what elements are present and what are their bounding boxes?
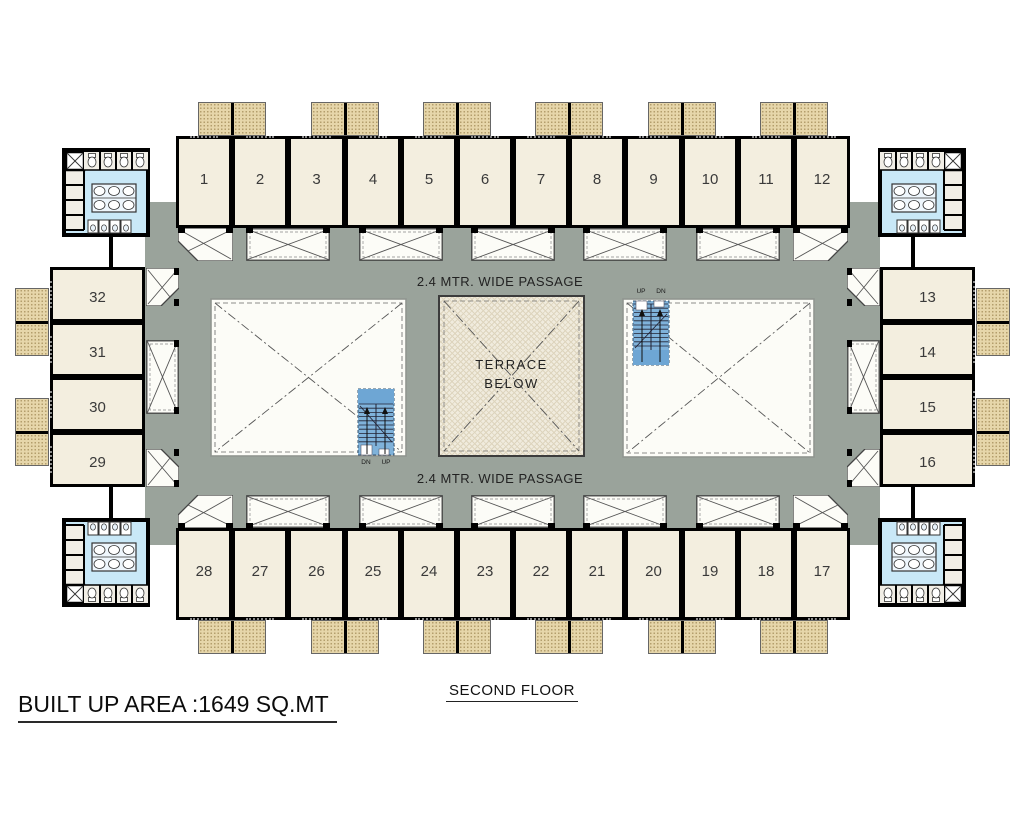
room-number: 6	[460, 171, 510, 188]
room: 30	[50, 377, 145, 432]
room: 10	[682, 136, 738, 228]
staircase-right	[632, 300, 670, 366]
window-sill	[696, 136, 724, 138]
room: 5	[401, 136, 457, 228]
room-number: 10	[685, 171, 735, 188]
room: 4	[345, 136, 401, 228]
room-number: 5	[404, 171, 454, 188]
wall-stub	[911, 237, 915, 268]
balcony-divider-wall	[344, 621, 347, 653]
entrance-canopy	[246, 495, 330, 528]
room-number: 25	[348, 563, 398, 580]
balcony-divider-wall	[681, 103, 684, 135]
staircase-left	[357, 388, 395, 456]
room-number: 18	[741, 563, 791, 580]
room-number: 13	[883, 289, 972, 306]
room: 17	[794, 528, 850, 620]
balcony-divider-wall	[16, 431, 48, 434]
entrance-canopy	[471, 228, 555, 261]
entrance-canopy	[847, 268, 880, 306]
room-number: 28	[179, 563, 229, 580]
built-up-area-label: BUILT UP AREA :1649 SQ.MT	[18, 691, 337, 723]
room-number: 15	[883, 399, 972, 416]
room-number: 32	[53, 289, 142, 306]
stair-right-label-up: UP	[631, 288, 651, 295]
room: 14	[880, 322, 975, 377]
room: 3	[288, 136, 345, 228]
passage-label-bottom: 2.4 MTR. WIDE PASSAGE	[370, 471, 630, 486]
wall-stub	[109, 486, 113, 518]
room-number: 3	[291, 171, 342, 188]
entrance-canopy	[793, 495, 848, 528]
room-number: 11	[741, 171, 791, 188]
room: 29	[50, 432, 145, 487]
window-sill	[302, 136, 331, 138]
balcony	[15, 288, 49, 356]
window-sill	[50, 446, 52, 473]
entrance-canopy	[471, 495, 555, 528]
room: 32	[50, 267, 145, 322]
window-sill	[50, 391, 52, 418]
window-sill	[973, 281, 975, 308]
room-number: 17	[797, 563, 847, 580]
balcony	[648, 102, 716, 136]
balcony-divider-wall	[793, 621, 796, 653]
room: 8	[569, 136, 625, 228]
room: 9	[625, 136, 682, 228]
passage-label-top: 2.4 MTR. WIDE PASSAGE	[370, 274, 630, 289]
room: 6	[457, 136, 513, 228]
room-number: 26	[291, 563, 342, 580]
balcony-divider-wall	[231, 103, 234, 135]
stair-left-label-dn: DN	[356, 459, 376, 466]
window-sill	[527, 136, 555, 138]
window-sill	[50, 281, 52, 308]
entrance-canopy	[583, 228, 667, 261]
balcony	[976, 398, 1010, 466]
window-sill	[752, 136, 780, 138]
room: 1	[176, 136, 232, 228]
window-sill	[808, 136, 836, 138]
balcony	[760, 620, 828, 654]
room: 31	[50, 322, 145, 377]
entrance-canopy	[696, 495, 780, 528]
room: 28	[176, 528, 232, 620]
balcony	[648, 620, 716, 654]
room: 23	[457, 528, 513, 620]
stair-left-label-up: UP	[376, 459, 396, 466]
room: 18	[738, 528, 794, 620]
balcony	[198, 620, 266, 654]
room-number: 24	[404, 563, 454, 580]
room: 11	[738, 136, 794, 228]
terrace-label-line1: TERRACE	[440, 357, 583, 372]
balcony-divider-wall	[16, 321, 48, 324]
stair-right-label-dn: DN	[651, 288, 671, 295]
window-sill	[973, 336, 975, 363]
room: 16	[880, 432, 975, 487]
room-number: 1	[179, 171, 229, 188]
room: 7	[513, 136, 569, 228]
window-sill	[246, 136, 274, 138]
room-number: 12	[797, 171, 847, 188]
window-sill	[583, 136, 611, 138]
entrance-canopy	[246, 228, 330, 261]
balcony	[311, 102, 379, 136]
room: 12	[794, 136, 850, 228]
room-number: 16	[883, 454, 972, 471]
room-number: 7	[516, 171, 566, 188]
entrance-canopy	[146, 449, 179, 487]
balcony	[423, 620, 491, 654]
window-sill	[639, 136, 668, 138]
toilet-block-top-left	[62, 148, 150, 237]
room-number: 29	[53, 454, 142, 471]
window-sill	[50, 336, 52, 363]
toilet-block-bottom-left	[62, 518, 150, 607]
room: 15	[880, 377, 975, 432]
balcony-divider-wall	[568, 103, 571, 135]
room: 13	[880, 267, 975, 322]
room-number: 4	[348, 171, 398, 188]
wall-stub	[911, 486, 915, 518]
terrace-label-line2: BELOW	[440, 376, 583, 391]
room: 19	[682, 528, 738, 620]
entrance-canopy	[146, 268, 179, 306]
entrance-canopy	[696, 228, 780, 261]
balcony-divider-wall	[568, 621, 571, 653]
floor-title-text: SECOND FLOOR	[446, 682, 578, 702]
room: 22	[513, 528, 569, 620]
balcony	[198, 102, 266, 136]
entrance-canopy	[359, 495, 443, 528]
entrance-canopy	[793, 228, 848, 261]
entrance-canopy	[146, 340, 179, 414]
window-sill	[415, 136, 443, 138]
entrance-canopy	[583, 495, 667, 528]
balcony	[15, 398, 49, 466]
window-sill	[359, 136, 387, 138]
toilet-block-bottom-right	[878, 518, 966, 607]
room-number: 14	[883, 344, 972, 361]
room-number: 27	[235, 563, 285, 580]
room-number: 19	[685, 563, 735, 580]
room-number: 30	[53, 399, 142, 416]
window-sill	[973, 391, 975, 418]
room: 24	[401, 528, 457, 620]
room: 2	[232, 136, 288, 228]
terrace-below: TERRACE BELOW	[438, 295, 585, 457]
room-number: 20	[628, 563, 679, 580]
entrance-canopy	[847, 340, 880, 414]
wall-stub	[109, 237, 113, 268]
balcony	[535, 102, 603, 136]
room: 27	[232, 528, 288, 620]
toilet-block-top-right	[878, 148, 966, 237]
window-sill	[973, 446, 975, 473]
balcony-divider-wall	[681, 621, 684, 653]
room-number: 9	[628, 171, 679, 188]
floor-title: SECOND FLOOR	[412, 682, 612, 702]
floor-plan: 2.4 MTR. WIDE PASSAGE 2.4 MTR. WIDE PASS…	[0, 0, 1024, 819]
balcony	[311, 620, 379, 654]
balcony	[976, 288, 1010, 356]
balcony-divider-wall	[456, 621, 459, 653]
entrance-canopy	[178, 228, 233, 261]
room: 25	[345, 528, 401, 620]
window-sill	[190, 136, 218, 138]
room-number: 21	[572, 563, 622, 580]
room-number: 23	[460, 563, 510, 580]
balcony	[535, 620, 603, 654]
entrance-canopy	[847, 449, 880, 487]
balcony-divider-wall	[793, 103, 796, 135]
room-number: 2	[235, 171, 285, 188]
room: 20	[625, 528, 682, 620]
balcony-divider-wall	[456, 103, 459, 135]
balcony-divider-wall	[344, 103, 347, 135]
room-number: 8	[572, 171, 622, 188]
balcony-divider-wall	[231, 621, 234, 653]
balcony	[760, 102, 828, 136]
balcony-divider-wall	[977, 431, 1009, 434]
room-number: 31	[53, 344, 142, 361]
balcony-divider-wall	[977, 321, 1009, 324]
entrance-canopy	[359, 228, 443, 261]
room: 21	[569, 528, 625, 620]
window-sill	[471, 136, 499, 138]
room-number: 22	[516, 563, 566, 580]
balcony	[423, 102, 491, 136]
entrance-canopy	[178, 495, 233, 528]
room: 26	[288, 528, 345, 620]
